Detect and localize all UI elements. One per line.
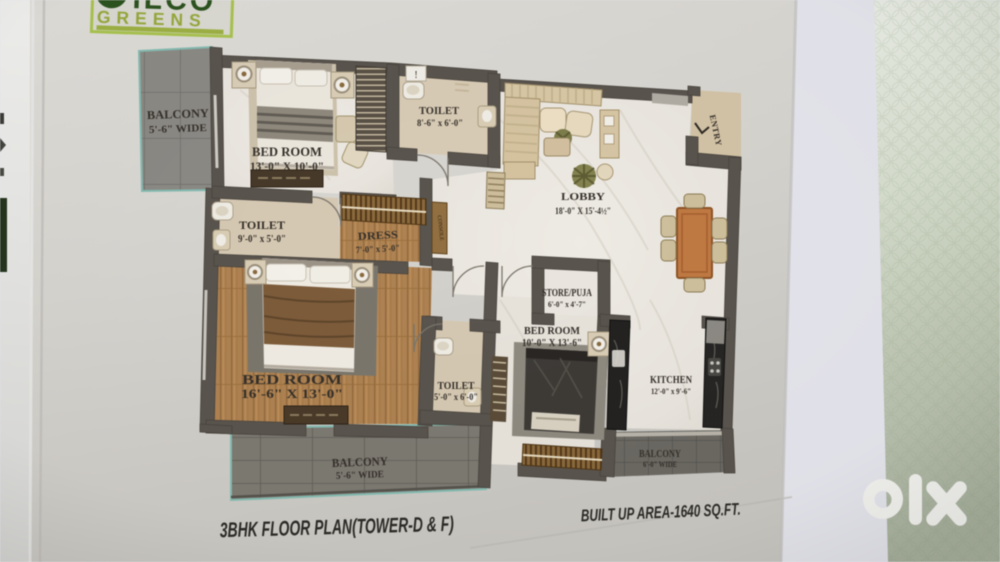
svg-text:TOILET: TOILET (239, 220, 285, 232)
svg-text:BED ROOM: BED ROOM (242, 373, 342, 388)
svg-text:TOILET: TOILET (438, 381, 475, 392)
svg-text:BALCONY: BALCONY (332, 454, 389, 470)
svg-text:18'-0" X 15'-4½": 18'-0" X 15'-4½" (555, 207, 611, 217)
svg-text:5'-6" WIDE: 5'-6" WIDE (336, 469, 385, 482)
svg-text:LOBBY: LOBBY (561, 191, 605, 203)
svg-text:12'-0" x 9'-6": 12'-0" x 9'-6" (651, 386, 691, 396)
svg-text:5'-0" x 6'-0": 5'-0" x 6'-0" (434, 392, 478, 402)
svg-text:STORE/PUJA: STORE/PUJA (542, 288, 593, 299)
svg-text:16'-6" X 13'-0": 16'-6" X 13'-0" (241, 387, 343, 401)
svg-text:BED ROOM: BED ROOM (252, 144, 322, 159)
svg-text:6'-0" x 4'-7": 6'-0" x 4'-7" (548, 299, 586, 309)
svg-text:BALCONY: BALCONY (147, 106, 210, 122)
svg-text:10'-0" X 13'-6": 10'-0" X 13'-6" (522, 338, 582, 349)
svg-text:!: ! (414, 70, 417, 81)
svg-text:6'-0" WIDE: 6'-0" WIDE (643, 459, 677, 469)
svg-text:13'-0" X 10'-0": 13'-0" X 10'-0" (250, 159, 324, 173)
svg-text:5'-6" WIDE: 5'-6" WIDE (149, 123, 207, 136)
svg-text:TOILET: TOILET (419, 105, 460, 117)
svg-text:KITCHEN: KITCHEN (650, 375, 692, 386)
svg-text:9'-0" x 5'-0": 9'-0" x 5'-0" (238, 234, 286, 245)
svg-text:DRESS: DRESS (358, 229, 399, 243)
svg-text:8'-6" x 6'-0": 8'-6" x 6'-0" (417, 119, 463, 129)
svg-text:BED ROOM: BED ROOM (524, 325, 581, 337)
